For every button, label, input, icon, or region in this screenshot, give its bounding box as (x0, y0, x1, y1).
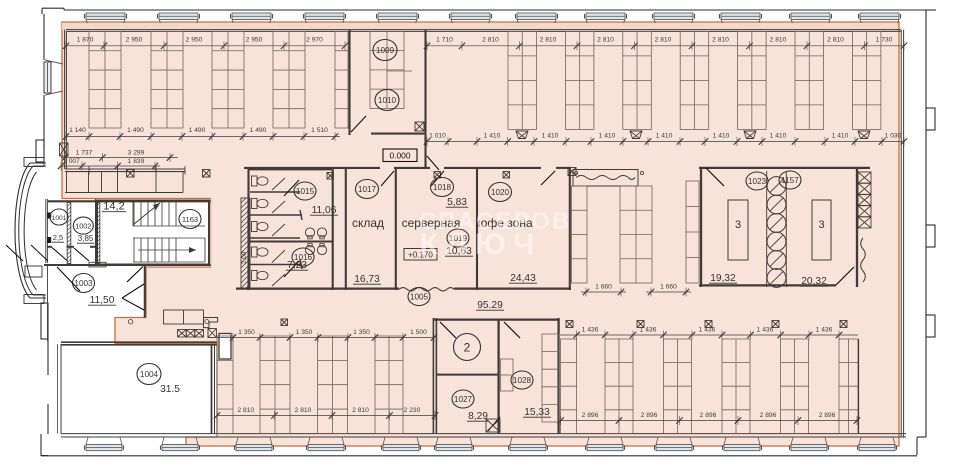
svg-text:16,73: 16,73 (354, 274, 380, 285)
svg-text:2 810: 2 810 (770, 37, 787, 44)
svg-text:1 410: 1 410 (656, 133, 673, 140)
svg-text:2 896: 2 896 (819, 412, 836, 419)
svg-text:1 737: 1 737 (76, 150, 93, 157)
svg-text:1 490: 1 490 (250, 127, 267, 134)
svg-text:11,50: 11,50 (90, 295, 115, 306)
svg-text:2 950: 2 950 (126, 37, 143, 44)
svg-text:КЛЮЧ: КЛЮЧ (420, 228, 543, 261)
svg-text:1 710: 1 710 (436, 37, 453, 44)
svg-text:1023: 1023 (748, 177, 767, 186)
svg-text:1 410: 1 410 (542, 133, 559, 140)
svg-text:1009: 1009 (376, 46, 395, 55)
svg-text:2: 2 (464, 341, 471, 355)
svg-text:95.29: 95.29 (477, 300, 503, 311)
svg-text:3: 3 (735, 219, 741, 231)
svg-text:1 030: 1 030 (885, 133, 902, 140)
svg-text:24,43: 24,43 (510, 273, 536, 284)
svg-text:1 410: 1 410 (599, 133, 616, 140)
svg-text:1 660: 1 660 (660, 284, 677, 291)
svg-text:1004: 1004 (140, 370, 159, 379)
svg-text:1 350: 1 350 (296, 329, 313, 336)
svg-text:1017: 1017 (358, 185, 377, 194)
svg-text:1 410: 1 410 (832, 133, 849, 140)
svg-text:2 970: 2 970 (306, 37, 323, 44)
svg-text:1 490: 1 490 (189, 127, 206, 134)
svg-text:31.5: 31.5 (160, 384, 180, 395)
svg-text:2,5: 2,5 (53, 233, 63, 242)
svg-text:1018: 1018 (433, 183, 452, 192)
svg-text:1 007: 1 007 (63, 158, 80, 165)
svg-text:1020: 1020 (491, 188, 510, 197)
svg-text:2 896: 2 896 (641, 412, 658, 419)
svg-text:11,06: 11,06 (312, 205, 337, 216)
svg-text:20,32: 20,32 (801, 276, 827, 287)
svg-text:1 839: 1 839 (128, 158, 145, 165)
svg-text:2 230: 2 230 (404, 407, 421, 414)
svg-text:1005: 1005 (410, 293, 429, 302)
svg-text:7,23: 7,23 (287, 260, 307, 271)
svg-text:1 410: 1 410 (484, 133, 501, 140)
svg-text:1 730: 1 730 (876, 37, 893, 44)
svg-text:2 896: 2 896 (760, 412, 777, 419)
svg-text:0.000: 0.000 (390, 151, 411, 161)
svg-text:1 500: 1 500 (410, 329, 427, 336)
svg-text:2 810: 2 810 (827, 37, 844, 44)
svg-text:19,32: 19,32 (710, 273, 736, 284)
svg-text:1 870: 1 870 (77, 37, 94, 44)
svg-text:2 810: 2 810 (295, 407, 312, 414)
svg-text:2 896: 2 896 (582, 412, 599, 419)
svg-text:2 810: 2 810 (482, 37, 499, 44)
svg-text:1027: 1027 (454, 395, 473, 404)
svg-text:1 436: 1 436 (582, 327, 599, 334)
svg-text:3,85: 3,85 (78, 234, 94, 243)
svg-text:3 299: 3 299 (128, 150, 145, 157)
svg-text:склад: склад (352, 216, 384, 230)
svg-text:1028: 1028 (513, 376, 532, 385)
svg-text:2 810: 2 810 (540, 37, 557, 44)
svg-text:1 436: 1 436 (757, 327, 774, 334)
svg-text:1015: 1015 (296, 187, 315, 196)
svg-text:2 810: 2 810 (655, 37, 672, 44)
svg-text:1001: 1001 (52, 215, 67, 222)
svg-text:2 950: 2 950 (246, 37, 263, 44)
svg-text:5,83: 5,83 (447, 197, 467, 208)
svg-text:1163: 1163 (182, 215, 198, 224)
svg-text:1 010: 1 010 (429, 133, 446, 140)
svg-text:3: 3 (818, 219, 824, 231)
svg-text:1 510: 1 510 (311, 127, 328, 134)
svg-text:1 350: 1 350 (353, 329, 370, 336)
svg-text:2,09: 2,09 (241, 251, 248, 264)
svg-text:8,29: 8,29 (468, 411, 488, 422)
svg-text:1010: 1010 (378, 96, 397, 105)
svg-text:2 896: 2 896 (700, 412, 717, 419)
svg-text:1 490: 1 490 (127, 127, 144, 134)
svg-text:1 140: 1 140 (69, 127, 86, 134)
svg-text:1002: 1002 (75, 222, 91, 231)
svg-text:1 410: 1 410 (770, 133, 787, 140)
svg-text:1 350: 1 350 (238, 329, 255, 336)
svg-text:2 810: 2 810 (597, 37, 614, 44)
svg-text:2 810: 2 810 (237, 407, 254, 414)
svg-text:2 810: 2 810 (352, 407, 369, 414)
svg-text:1 436: 1 436 (816, 327, 833, 334)
svg-text:1 660: 1 660 (595, 284, 612, 291)
svg-text:1003: 1003 (74, 279, 93, 288)
svg-text:2 810: 2 810 (712, 37, 729, 44)
svg-text:1 410: 1 410 (713, 133, 730, 140)
svg-text:15,33: 15,33 (524, 407, 550, 418)
svg-text:2 950: 2 950 (186, 37, 203, 44)
